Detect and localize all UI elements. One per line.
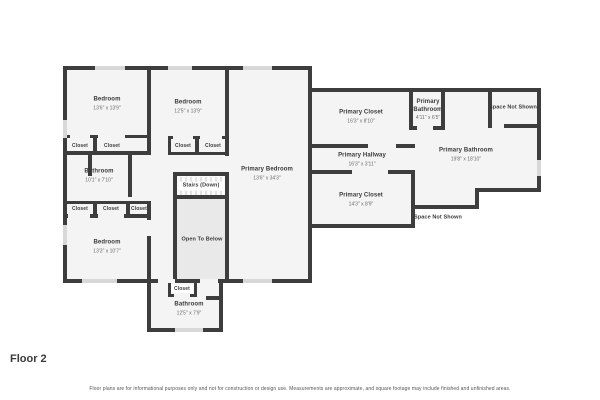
floorplan-drawing: [0, 0, 600, 400]
floorplan-page: Bedroom 13'6" x 13'9" Bedroom 12'5" x 13…: [0, 0, 600, 400]
floor-title: Floor 2: [10, 353, 47, 365]
disclaimer-text: Floor plans are for informational purpos…: [89, 386, 510, 392]
